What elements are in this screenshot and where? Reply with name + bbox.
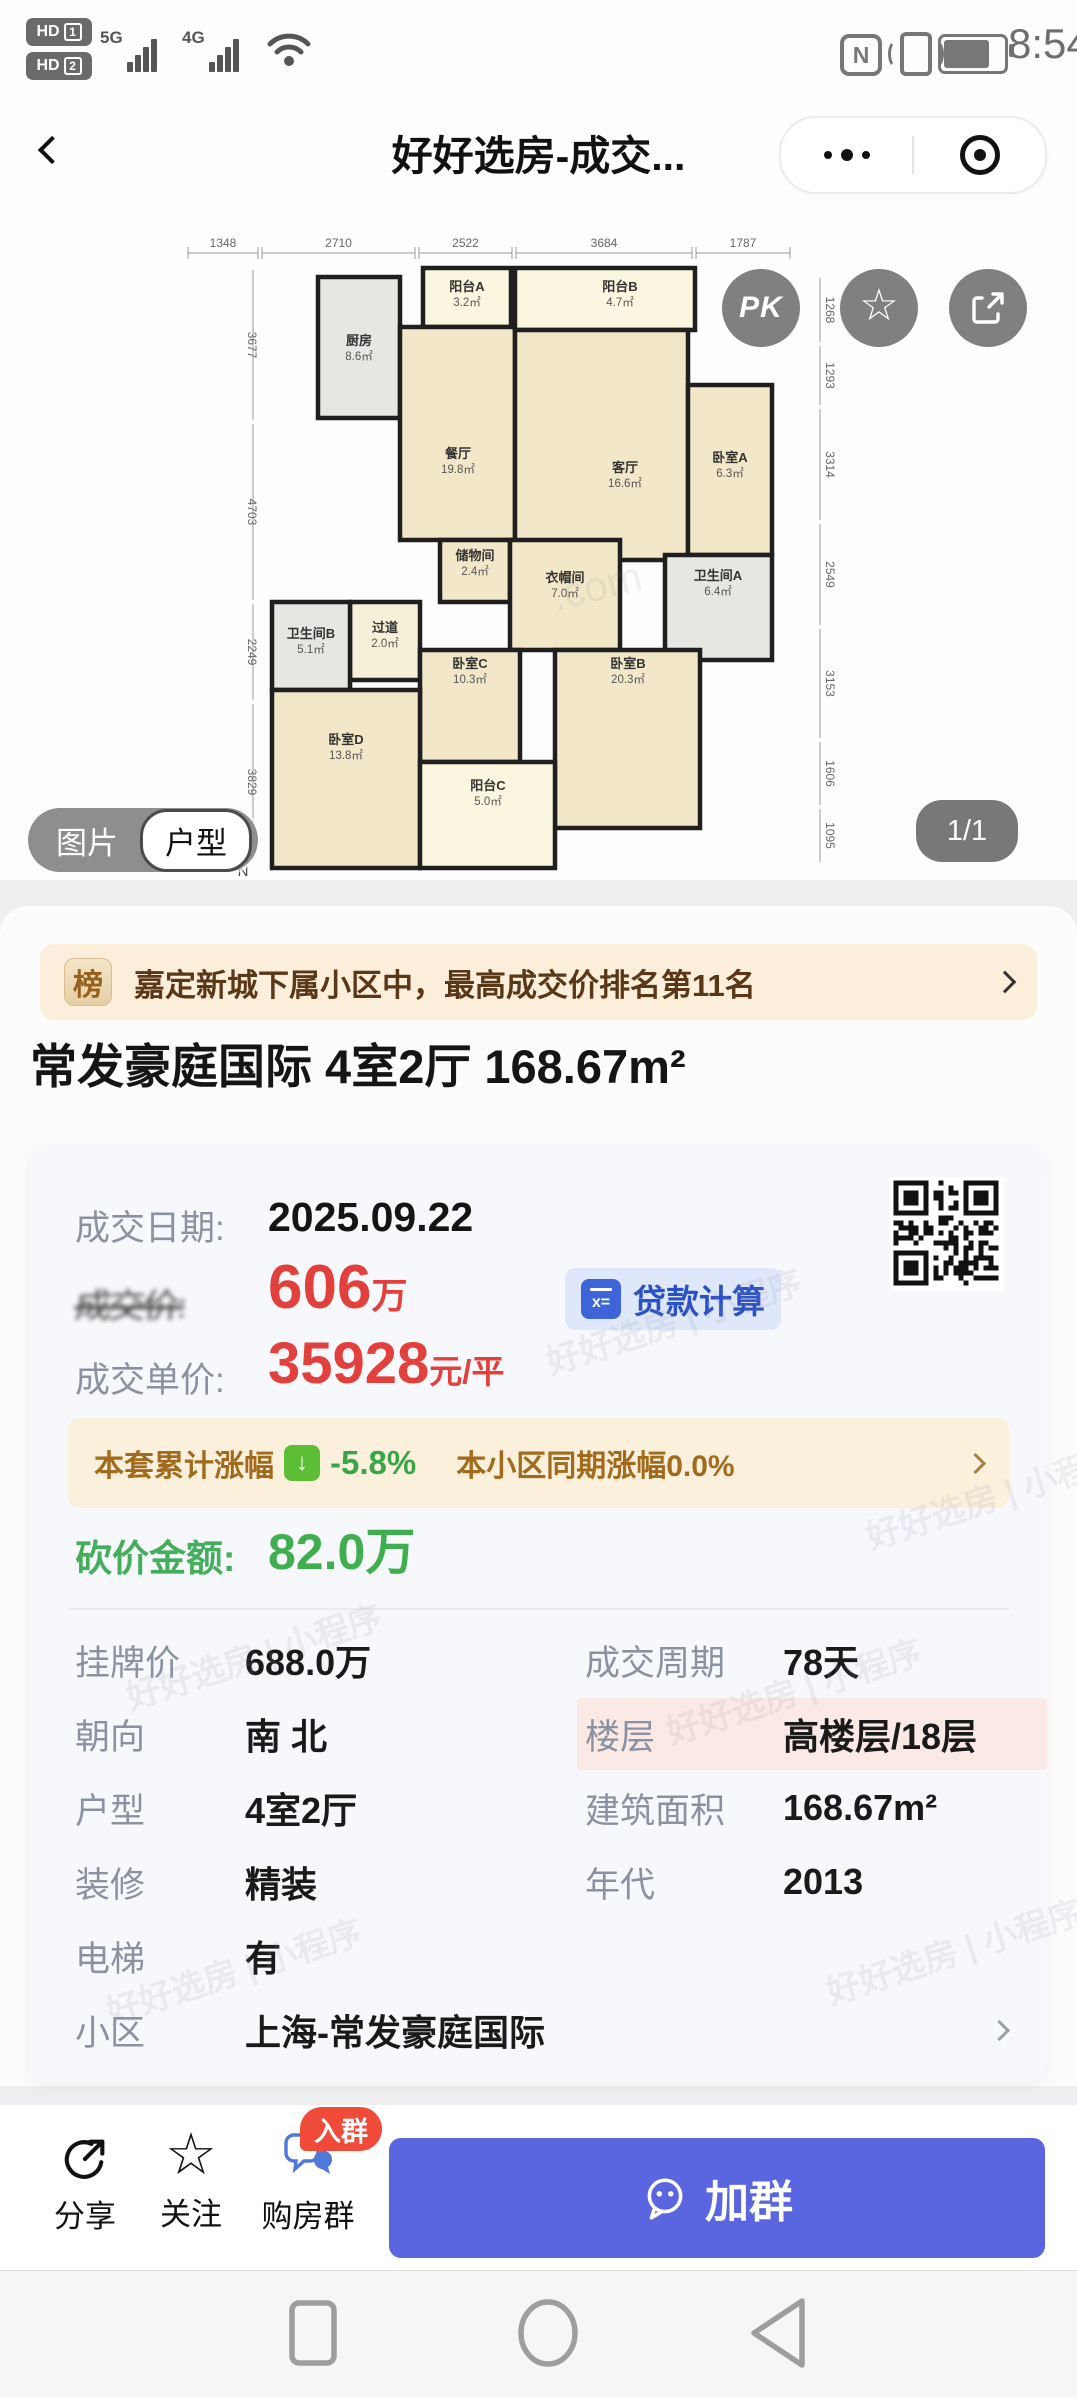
page-indicator: 1/1 xyxy=(916,800,1018,862)
chat-smile-icon xyxy=(641,2174,689,2222)
info-value: 78天 xyxy=(783,1634,859,1686)
svg-text:6.4㎡: 6.4㎡ xyxy=(704,585,732,598)
page-title: 好好选房-成交... xyxy=(392,122,686,182)
chevron-right-icon xyxy=(965,1452,986,1473)
svg-text:5.1㎡: 5.1㎡ xyxy=(297,643,325,656)
svg-text:6.3㎡: 6.3㎡ xyxy=(716,467,744,480)
floorplan-room: 过道2.0㎡ xyxy=(350,602,420,680)
info-row: 挂牌价688.0万成交周期78天 xyxy=(30,1623,1047,1697)
info-value: 高楼层/18层 xyxy=(783,1708,977,1760)
svg-text:阳台B: 阳台B xyxy=(602,279,637,294)
svg-text:1268: 1268 xyxy=(823,297,837,324)
info-row: 装修精装年代2013 xyxy=(30,1845,1047,1919)
info-label: 装修 xyxy=(75,1857,245,1908)
svg-text:3829: 3829 xyxy=(245,769,259,796)
svg-text:餐厅: 餐厅 xyxy=(444,446,471,461)
star-icon: ☆ xyxy=(165,2127,217,2183)
back-button[interactable] xyxy=(754,2301,802,2365)
svg-text:2.0㎡: 2.0㎡ xyxy=(371,637,399,650)
info-value: 有 xyxy=(245,1930,1047,1982)
floorplan-room: 卧室C10.3㎡ xyxy=(420,650,520,762)
svg-text:2710: 2710 xyxy=(325,236,352,250)
rank-badge-icon: 榜 xyxy=(64,958,112,1006)
loan-calculator-button[interactable]: x= 贷款计算 xyxy=(565,1268,781,1330)
qr-code xyxy=(890,1177,1004,1291)
share-arrow-icon xyxy=(59,2133,111,2185)
svg-text:过道: 过道 xyxy=(372,620,398,635)
info-label: 朝向 xyxy=(75,1709,245,1760)
floorplan-room: 阳台C5.0㎡ xyxy=(420,762,555,868)
floorplan-room: 卧室A6.3㎡ xyxy=(688,385,772,555)
hd2-icon: HD2 xyxy=(26,52,92,80)
info-label: 年代 xyxy=(585,1857,783,1908)
info-row: 户型4室2厅建筑面积168.67m² xyxy=(30,1771,1047,1845)
svg-text:3.2㎡: 3.2㎡ xyxy=(453,296,481,309)
svg-text:2249: 2249 xyxy=(245,639,259,666)
svg-text:8.6㎡: 8.6㎡ xyxy=(345,350,373,363)
svg-text:客厅: 客厅 xyxy=(612,460,638,475)
clock-time: 8:54 xyxy=(1008,20,1077,68)
favorite-star-button[interactable]: ☆ xyxy=(840,269,918,347)
floorplan-room: 阳台A3.2㎡ xyxy=(423,268,511,327)
svg-text:1348: 1348 xyxy=(210,236,237,250)
star-icon: ☆ xyxy=(859,284,898,328)
back-icon[interactable] xyxy=(38,136,66,164)
battery-icon xyxy=(938,34,1008,74)
info-row: 朝向南 北楼层高楼层/18层 xyxy=(30,1697,1047,1771)
svg-text:13.8㎡: 13.8㎡ xyxy=(329,749,363,762)
svg-text:3153: 3153 xyxy=(823,670,837,697)
svg-text:卧室A: 卧室A xyxy=(712,450,748,465)
svg-text:3314: 3314 xyxy=(823,451,837,478)
signal-5g-icon: 5G xyxy=(100,28,157,72)
floorplan-room: 客厅16.6㎡ xyxy=(515,330,688,560)
info-value: 4室2厅 xyxy=(245,1782,577,1834)
nfc-icon: N xyxy=(840,34,882,76)
svg-text:卫生间B: 卫生间B xyxy=(287,626,335,641)
info-value: 南 北 xyxy=(245,1708,577,1760)
status-bar: HD1 HD2 5G 4G N 8:54 xyxy=(0,0,1077,92)
bargain-value: 82.0万 xyxy=(268,1512,415,1584)
join-badge: 入群 xyxy=(300,2107,382,2151)
svg-text:16.6㎡: 16.6㎡ xyxy=(608,477,642,490)
info-label: 建筑面积 xyxy=(585,1783,783,1834)
share-floorplan-button[interactable] xyxy=(949,269,1027,347)
toggle-floorplan[interactable]: 户型 xyxy=(140,809,252,872)
floorplan-room: 卧室D13.8㎡ xyxy=(272,690,420,868)
toggle-photos[interactable]: 图片 xyxy=(34,818,140,863)
svg-text:卧室D: 卧室D xyxy=(328,732,363,747)
svg-text:卧室B: 卧室B xyxy=(610,656,645,671)
nav-bar: 好好选房-成交... xyxy=(0,92,1077,214)
deal-date-label: 成交日期: xyxy=(75,1200,225,1251)
ranking-banner[interactable]: 榜 嘉定新城下属小区中，最高成交价排名第11名 xyxy=(40,944,1037,1020)
chevron-right-icon xyxy=(994,971,1017,994)
info-label: 成交周期 xyxy=(585,1635,783,1686)
svg-text:4703: 4703 xyxy=(245,499,259,526)
unit-price-value: 35928元/平 xyxy=(268,1330,504,1397)
floorplan-room: 厨房8.6㎡ xyxy=(318,277,400,418)
svg-text:储物间: 储物间 xyxy=(454,548,494,563)
sale-price-value: 606万 xyxy=(268,1252,407,1323)
floorplan-section: 厨房8.6㎡阳台A3.2㎡餐厅19.8㎡阳台B4.7㎡客厅16.6㎡卧室A6.3… xyxy=(0,214,1077,880)
calculator-icon: x= xyxy=(581,1279,621,1319)
miniprogram-capsule xyxy=(779,116,1047,194)
signal-4g-icon: 4G xyxy=(182,28,239,72)
listing-title: 常发豪庭国际 4室2厅 168.67m² xyxy=(30,1028,686,1097)
recents-button[interactable] xyxy=(292,2303,334,2363)
close-minimize-button[interactable] xyxy=(914,118,1045,192)
svg-text:阳台A: 阳台A xyxy=(449,279,485,294)
info-value: 168.67m² xyxy=(783,1787,937,1829)
app-screen: HD1 HD2 5G 4G N 8:54 好好选房-成交... xyxy=(0,0,1077,2397)
info-value: 688.0万 xyxy=(245,1634,577,1686)
join-group-button[interactable]: 加群 xyxy=(389,2138,1045,2258)
hd1-icon: HD1 xyxy=(26,18,92,46)
svg-text:19.8㎡: 19.8㎡ xyxy=(441,463,475,476)
svg-text:厨房: 厨房 xyxy=(346,333,372,348)
pk-button[interactable]: PK xyxy=(722,269,800,347)
svg-text:3684: 3684 xyxy=(591,236,618,250)
media-toggle: 图片 户型 xyxy=(28,808,258,872)
ellipsis-icon xyxy=(824,149,870,161)
sale-price-label: 成交价: xyxy=(75,1276,184,1330)
more-menu-button[interactable] xyxy=(781,118,912,192)
floorplan-room: 卫生间B5.1㎡ xyxy=(272,602,350,690)
info-row: 电梯有 xyxy=(30,1919,1047,1993)
action-bar: 分享 ☆ 关注 购房群 入群 加群 xyxy=(0,2105,1077,2270)
divider xyxy=(68,1608,1009,1610)
svg-text:卧室C: 卧室C xyxy=(452,656,488,671)
floorplan-room: 储物间2.4㎡ xyxy=(440,540,510,602)
svg-text:3677: 3677 xyxy=(245,332,259,359)
svg-text:10.3㎡: 10.3㎡ xyxy=(453,673,487,686)
svg-text:2.4㎡: 2.4㎡ xyxy=(461,565,489,578)
svg-text:2549: 2549 xyxy=(823,561,837,588)
info-label: 户型 xyxy=(75,1783,245,1834)
floorplan-room: 餐厅19.8㎡ xyxy=(400,327,515,540)
share-action[interactable]: 分享 xyxy=(42,2133,128,2236)
bargain-label: 砍价金额: xyxy=(75,1528,235,1582)
svg-text:1787: 1787 xyxy=(730,236,757,250)
down-arrow-icon: ↓ xyxy=(284,1445,320,1481)
info-label: 小区 xyxy=(75,2005,245,2056)
share-icon xyxy=(969,289,1007,327)
svg-text:20.3㎡: 20.3㎡ xyxy=(611,673,645,686)
svg-text:1606: 1606 xyxy=(823,760,837,787)
follow-action[interactable]: ☆ 关注 xyxy=(148,2127,234,2234)
svg-text:4.7㎡: 4.7㎡ xyxy=(606,296,634,309)
info-label: 挂牌价 xyxy=(75,1635,245,1686)
deal-date-value: 2025.09.22 xyxy=(268,1194,473,1241)
svg-text:阳台C: 阳台C xyxy=(470,778,506,793)
home-button[interactable] xyxy=(521,2302,575,2364)
price-change-banner[interactable]: 本套累计涨幅 ↓ -5.8% 本小区同期涨幅0.0% xyxy=(68,1418,1009,1508)
ranking-text: 嘉定新城下属小区中，最高成交价排名第11名 xyxy=(134,960,756,1005)
svg-text:2522: 2522 xyxy=(452,236,479,250)
floorplan-room: 阳台B4.7㎡ xyxy=(515,268,695,330)
svg-text:5.0㎡: 5.0㎡ xyxy=(474,795,502,808)
vibrate-icon xyxy=(900,32,932,76)
svg-text:卫生间A: 卫生间A xyxy=(694,568,743,583)
android-nav-bar: 头条@合肥楼市论坛 xyxy=(0,2270,1077,2397)
svg-text:1293: 1293 xyxy=(823,362,837,389)
info-label: 电梯 xyxy=(75,1931,245,1982)
info-value: 精装 xyxy=(245,1856,577,1908)
wifi-icon xyxy=(266,30,312,70)
info-value: 2013 xyxy=(783,1861,863,1903)
floorplan-room: 卧室B20.3㎡ xyxy=(555,650,700,828)
info-row[interactable]: 小区上海-常发豪庭国际 xyxy=(30,1993,1047,2067)
info-value: 上海-常发豪庭国际 xyxy=(245,2004,1047,2056)
unit-price-label: 成交单价: xyxy=(75,1352,225,1403)
svg-text:1095: 1095 xyxy=(823,822,837,849)
target-circle-icon xyxy=(960,135,1000,175)
info-label: 楼层 xyxy=(585,1709,783,1760)
floorplan-room: 卫生间A6.4㎡ xyxy=(665,555,772,660)
